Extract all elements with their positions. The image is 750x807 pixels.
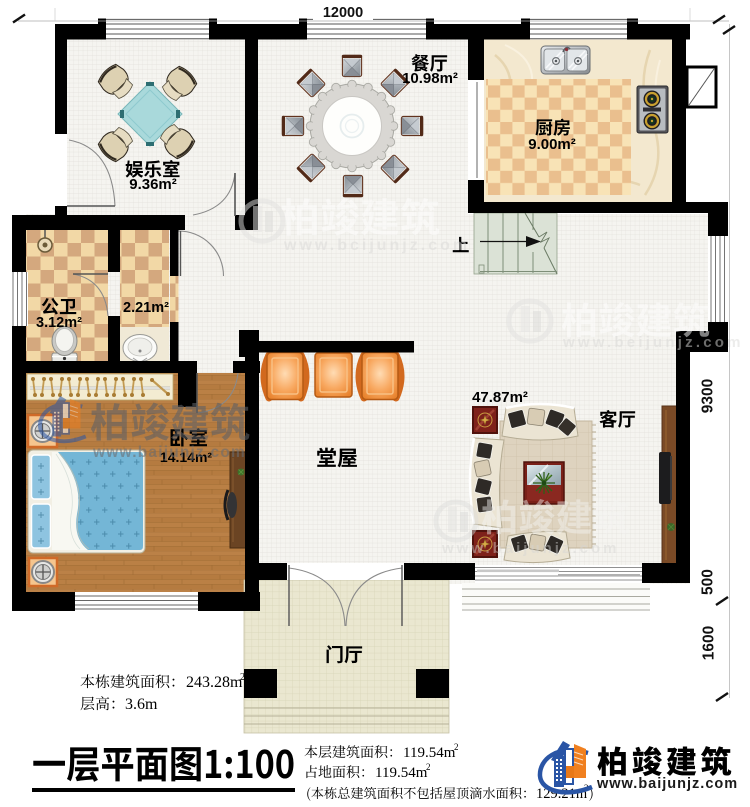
svg-text:119.54m: 119.54m xyxy=(403,745,456,761)
svg-text:9.36m²: 9.36m² xyxy=(129,176,177,193)
svg-text:www.bcijunjz.com: www.bcijunjz.com xyxy=(283,237,470,254)
svg-text:500: 500 xyxy=(700,569,717,595)
svg-text:www.beijunjz.com: www.beijunjz.com xyxy=(562,334,744,351)
svg-text:3.12m²: 3.12m² xyxy=(36,315,82,331)
svg-text:2: 2 xyxy=(426,762,431,772)
svg-text:3.6m: 3.6m xyxy=(125,696,158,713)
svg-text:243.28m: 243.28m xyxy=(186,674,243,691)
svg-text:www.baijunjz.com: www.baijunjz.com xyxy=(441,540,619,557)
svg-text:2: 2 xyxy=(454,742,459,752)
svg-text:12000: 12000 xyxy=(323,5,363,21)
svg-text:47.87m²: 47.87m² xyxy=(472,389,528,406)
svg-text:www.baijunjz.com: www.baijunjz.com xyxy=(596,776,738,792)
svg-text:119.54m: 119.54m xyxy=(375,765,428,781)
svg-text:10.98m²: 10.98m² xyxy=(402,70,458,87)
svg-text:1600: 1600 xyxy=(701,626,718,660)
svg-text:2: 2 xyxy=(240,672,245,683)
svg-text:9300: 9300 xyxy=(700,379,717,413)
svg-text:9.00m²: 9.00m² xyxy=(528,136,576,153)
svg-text:2.21m²: 2.21m² xyxy=(123,300,169,316)
svg-text:www.baijunjz.com: www.baijunjz.com xyxy=(92,444,246,461)
